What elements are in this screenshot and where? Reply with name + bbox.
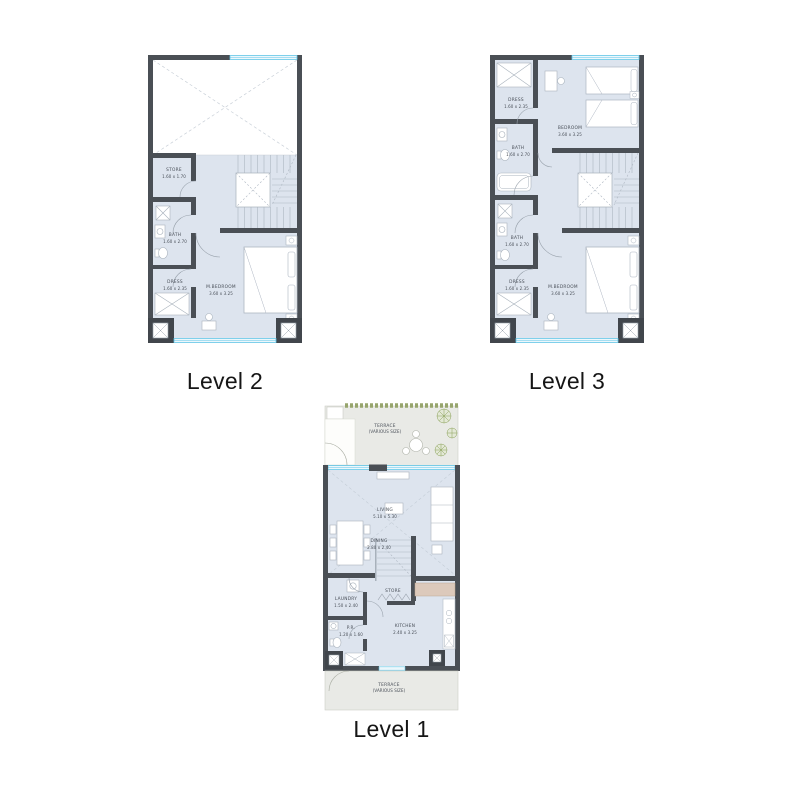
bottom-terrace: TERRACE (VARIOUS SIZE) (325, 671, 458, 710)
svg-text:DRESS: DRESS (508, 97, 524, 103)
svg-text:STORE: STORE (166, 167, 182, 173)
svg-text:BATH: BATH (512, 145, 524, 151)
bottom-window (516, 339, 618, 343)
svg-text:(VARIOUS SIZE): (VARIOUS SIZE) (373, 688, 406, 693)
tv-console-icon (377, 472, 409, 479)
floorplan-sheet: STORE 1.60 x 1.70 BATH 1.60 x 2.70 DRESS… (0, 0, 800, 800)
svg-text:P.R.: P.R. (347, 625, 356, 631)
level3-title: Level 3 (490, 368, 644, 395)
svg-text:1.20 x 1.60: 1.20 x 1.60 (339, 632, 363, 637)
wardrobe-icon (497, 63, 531, 87)
svg-text:M.BEDROOM: M.BEDROOM (206, 284, 236, 290)
svg-text:1.60 x 2.35: 1.60 x 2.35 (163, 286, 187, 291)
wardrobe-icon (155, 293, 189, 315)
svg-text:1.60 x 2.70: 1.60 x 2.70 (163, 239, 187, 244)
svg-text:1.60 x 2.70: 1.60 x 2.70 (506, 152, 530, 157)
level2-plan: STORE 1.60 x 1.70 BATH 1.60 x 2.70 DRESS… (148, 55, 302, 348)
svg-text:2.40 x 3.25: 2.40 x 3.25 (393, 630, 417, 635)
entry-door (369, 465, 387, 472)
entry-nook (325, 419, 355, 465)
cabinet-icon (345, 653, 365, 665)
bed-icon (244, 236, 297, 323)
svg-text:KITCHEN: KITCHEN (395, 623, 415, 629)
top-window (230, 56, 297, 60)
svg-text:3.60 x 3.25: 3.60 x 3.25 (551, 291, 575, 296)
svg-text:1.60 x 2.35: 1.60 x 2.35 (504, 104, 528, 109)
svg-text:1.60 x 2.70: 1.60 x 2.70 (505, 242, 529, 247)
level1-title: Level 1 (323, 716, 460, 743)
svg-text:LAUNDRY: LAUNDRY (335, 596, 357, 602)
top-window (572, 56, 639, 60)
svg-text:2.80 x 2.40: 2.80 x 2.40 (367, 545, 391, 550)
svg-text:1.50 x 2.40: 1.50 x 2.40 (334, 603, 358, 608)
kitchen-counter (415, 583, 455, 596)
level1-drawing: TERRACE (VARIOUS SIZE) (323, 403, 460, 713)
svg-text:1.60 x 1.70: 1.60 x 1.70 (162, 174, 186, 179)
laundry-fixtures (347, 580, 359, 592)
rear-glass-door (379, 666, 405, 671)
wardrobe-icon-lower (497, 293, 531, 315)
level1-plan: TERRACE (VARIOUS SIZE) (323, 403, 460, 713)
sofa-icon (431, 487, 453, 541)
room-label-store: STORE (385, 588, 401, 594)
bottom-window (174, 339, 276, 343)
svg-text:BATH: BATH (511, 235, 523, 241)
svg-text:DINING: DINING (370, 538, 387, 544)
planter-box (327, 407, 343, 419)
top-terrace: TERRACE (VARIOUS SIZE) (325, 406, 458, 467)
dining-table-icon (337, 521, 363, 565)
svg-text:DRESS: DRESS (167, 279, 183, 285)
bed-icon (586, 236, 639, 323)
svg-text:BEDROOM: BEDROOM (558, 125, 582, 131)
svg-text:M.BEDROOM: M.BEDROOM (548, 284, 578, 290)
svg-text:1.60 x 2.35: 1.60 x 2.35 (505, 286, 529, 291)
side-table-icon (432, 545, 442, 554)
svg-text:3.60 x 3.25: 3.60 x 3.25 (209, 291, 233, 296)
svg-text:BATH: BATH (169, 232, 181, 238)
svg-text:LIVING: LIVING (377, 507, 393, 513)
svg-text:(VARIOUS SIZE): (VARIOUS SIZE) (369, 429, 402, 434)
svg-text:STORE: STORE (385, 588, 401, 594)
level2-drawing: STORE 1.60 x 1.70 BATH 1.60 x 2.70 DRESS… (148, 55, 302, 348)
level3-plan: DRESS 1.60 x 2.35 BEDROOM 3.60 x 3.25 BA… (490, 55, 644, 348)
svg-text:5.10 x 5.30: 5.10 x 5.30 (373, 514, 397, 519)
level2-title: Level 2 (148, 368, 302, 395)
level3-drawing: DRESS 1.60 x 2.35 BEDROOM 3.60 x 3.25 BA… (490, 55, 644, 348)
svg-text:DRESS: DRESS (509, 279, 525, 285)
svg-text:3.60 x 3.25: 3.60 x 3.25 (558, 132, 582, 137)
void-double-height-area (153, 60, 297, 155)
